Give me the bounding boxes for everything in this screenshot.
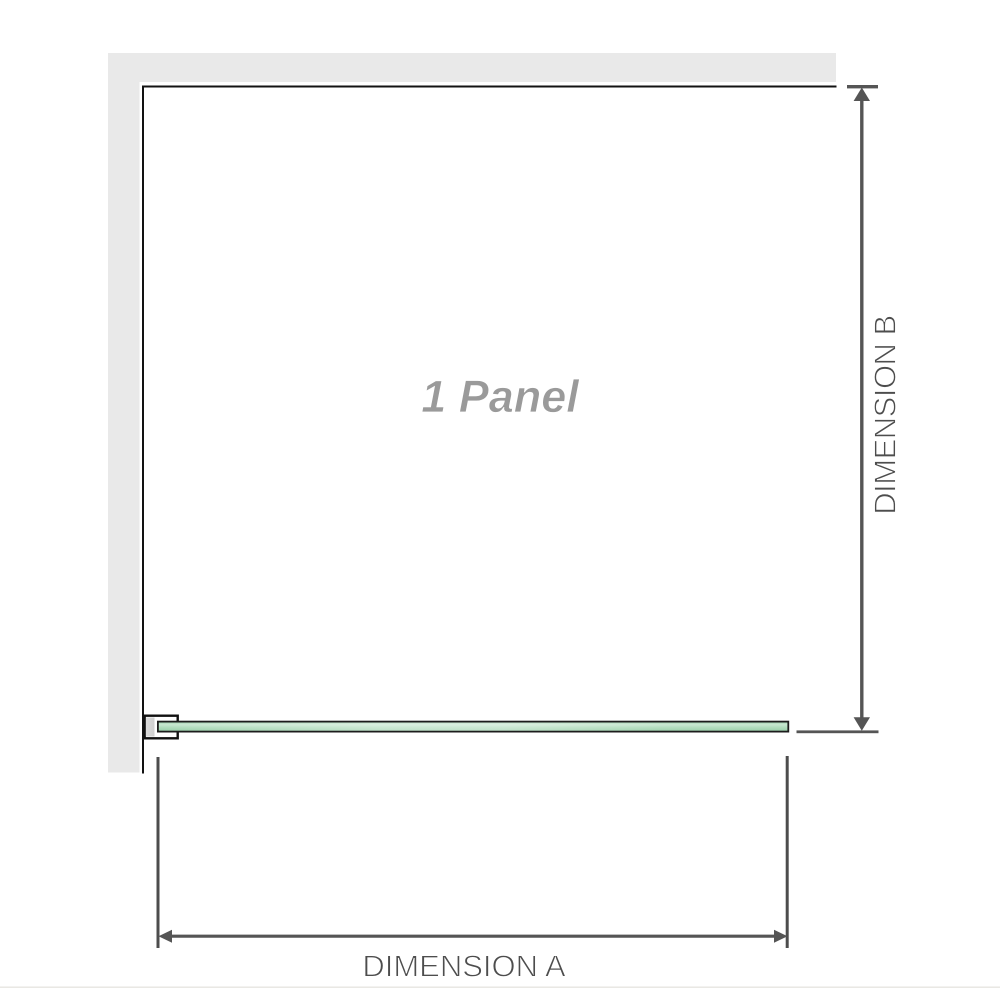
- svg-text:DIMENSION A: DIMENSION A: [362, 949, 566, 984]
- svg-text:1 Panel: 1 Panel: [421, 371, 580, 422]
- svg-text:DIMENSION B: DIMENSION B: [868, 315, 903, 514]
